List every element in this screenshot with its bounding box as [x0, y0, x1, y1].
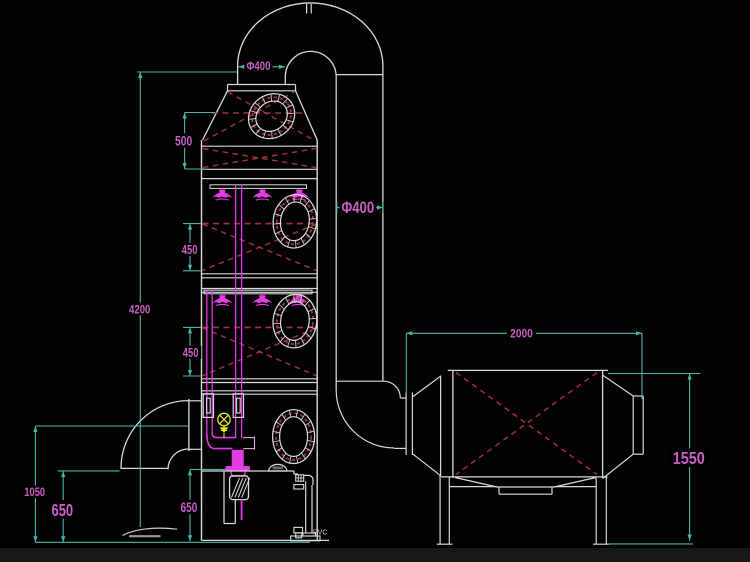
svg-text:450: 450	[182, 244, 198, 258]
svg-text:4200: 4200	[129, 303, 150, 316]
svg-text:Φ400: Φ400	[247, 60, 271, 73]
svg-text:PVC: PVC	[313, 530, 327, 537]
svg-text:650: 650	[181, 499, 198, 515]
svg-text:450: 450	[183, 347, 199, 361]
svg-text:1050: 1050	[24, 486, 45, 499]
svg-text:Φ400: Φ400	[341, 199, 374, 218]
svg-text:500: 500	[175, 133, 192, 149]
svg-text:2000: 2000	[510, 328, 533, 341]
svg-text:650: 650	[51, 501, 73, 521]
svg-text:1550: 1550	[673, 449, 705, 469]
